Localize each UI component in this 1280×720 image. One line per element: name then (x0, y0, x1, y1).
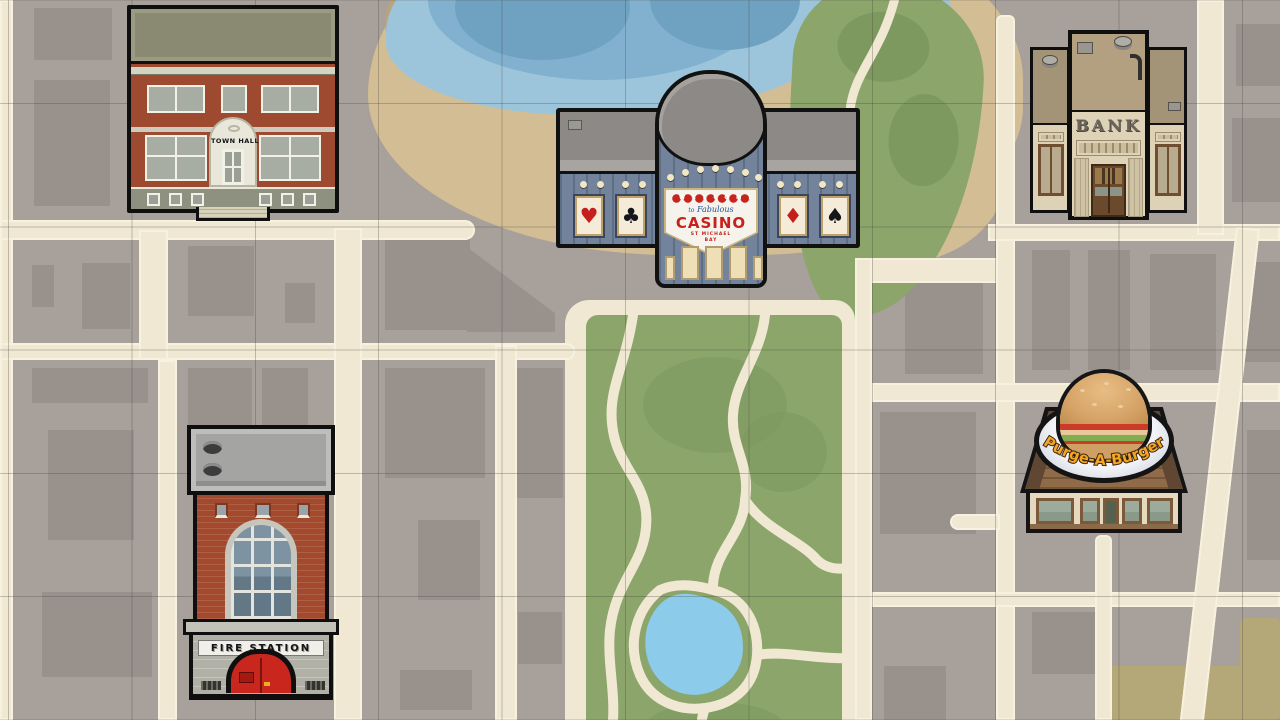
street (158, 360, 177, 720)
street (139, 230, 168, 360)
building-footprint (385, 238, 470, 330)
casino-building[interactable]: ♥ ♣ ♦ ♠ WELCOME to (556, 70, 866, 288)
marquee-light (777, 181, 784, 188)
marquee-light (697, 166, 704, 173)
town-hall-sign: TOWN HALL (211, 137, 255, 145)
street (872, 592, 1280, 607)
roof-vent (203, 463, 222, 476)
window (221, 85, 247, 113)
burger-sign: Purge-A-Burger (1040, 434, 1168, 469)
fire-station-roof (187, 425, 335, 495)
marquee-light (742, 169, 749, 176)
park-pond (645, 594, 743, 695)
marquee-light (794, 181, 801, 188)
entrance-panel (705, 246, 723, 280)
bank-building[interactable]: BANK (1030, 30, 1187, 220)
playing-card-club: ♣ (617, 196, 645, 236)
building-footprint (467, 247, 555, 332)
portico-frieze (1076, 140, 1141, 156)
street-stub (950, 514, 1000, 530)
marquee-light (836, 181, 843, 188)
fire-station-base (189, 694, 333, 700)
column (1128, 158, 1143, 217)
roof-vent-box (1168, 102, 1181, 111)
roof-vent (1114, 36, 1132, 47)
entrance-panel (753, 256, 763, 280)
bank-left-wing (1030, 47, 1070, 213)
burger-sign-text-arc: Purge-A-Burger (1030, 433, 1178, 489)
park-paths (565, 300, 855, 720)
sesame-seed (1126, 388, 1131, 391)
bank-door (1091, 164, 1126, 217)
casino-sign-fabulous: Fabulous (697, 205, 734, 214)
garage-door-panel (239, 672, 254, 683)
casino-tower: WELCOME to Fabulous CASINO ST MICHAEL BA… (655, 70, 767, 288)
street (0, 220, 475, 240)
window (1155, 144, 1181, 196)
storefront-window (1122, 498, 1142, 524)
entrance-portico: TOWN HALL (209, 117, 257, 187)
casino-sign-welcome: WELCOME (671, 193, 751, 204)
entrance-panel (665, 256, 675, 280)
building-footprint (34, 8, 112, 60)
window (1038, 144, 1064, 196)
building-footprint (1232, 118, 1280, 202)
building-footprint (42, 592, 152, 677)
street (996, 15, 1015, 720)
roof-vent-box (1077, 42, 1093, 54)
building-footprint (418, 520, 480, 600)
small-window (297, 503, 310, 518)
door-seam (1108, 168, 1110, 213)
marquee-light (639, 181, 646, 188)
vent-grate (201, 681, 221, 690)
khaki-block (1240, 618, 1280, 720)
basement-window (169, 193, 182, 206)
building-footprint (32, 368, 148, 403)
marquee-light (755, 174, 762, 181)
storefront-window (1036, 498, 1074, 524)
building-footprint (285, 283, 315, 323)
small-window (215, 503, 228, 518)
burger-restaurant-building[interactable]: Purge-A-Burger (1020, 385, 1188, 537)
bun-top (1060, 373, 1148, 424)
bank-right-wing (1147, 47, 1187, 213)
marquee-light (580, 181, 587, 188)
casino-sign-sub2: BAY (666, 238, 756, 243)
basement-window (303, 193, 316, 206)
fire-station-brick (193, 495, 329, 619)
window (259, 135, 321, 181)
marquee-light (712, 165, 719, 172)
building-footprint (188, 246, 254, 316)
marquee-light (597, 181, 604, 188)
entrance-panel (681, 246, 699, 280)
street (0, 343, 575, 360)
window (147, 85, 205, 113)
svg-text:Purge-A-Burger: Purge-A-Burger (1040, 434, 1168, 469)
roof-vent (1042, 55, 1058, 65)
fire-station-lower: FIRE STATION (189, 635, 333, 700)
vent-grate (305, 681, 325, 690)
small-window (255, 503, 271, 518)
building-footprint (1088, 250, 1130, 370)
casino-dome (655, 70, 767, 166)
basement-window (281, 193, 294, 206)
playing-card-spade: ♠ (821, 196, 849, 236)
casino-sign-name: CASINO (666, 214, 756, 232)
building-footprint (262, 368, 308, 426)
town-hall-building[interactable]: TOWN HALL (127, 5, 339, 213)
street (1197, 0, 1224, 235)
sesame-seed (1092, 403, 1097, 406)
window-frieze (1038, 132, 1064, 142)
entrance-panel (729, 246, 747, 280)
playing-card-diamond: ♦ (779, 196, 807, 236)
storefront-door (1103, 498, 1119, 526)
fire-station-cornice (183, 619, 339, 635)
column (1074, 158, 1089, 217)
street (495, 345, 517, 720)
building-footprint (518, 612, 562, 664)
roof-vent-icon (568, 120, 582, 130)
fire-station-building[interactable]: FIRE STATION (183, 425, 339, 700)
sesame-seed (1104, 382, 1109, 385)
building-footprint (1150, 254, 1216, 370)
marquee-light (727, 166, 734, 173)
building-footprint (32, 265, 54, 307)
marquee-light (682, 169, 689, 176)
building-footprint (1247, 430, 1280, 560)
sesame-seed (1118, 405, 1123, 408)
street (855, 258, 1015, 283)
casino-sign-to: to (688, 207, 694, 214)
marquee-light (622, 181, 629, 188)
storefront-base (1030, 524, 1178, 529)
building-footprint (1032, 612, 1104, 674)
town-hall-cornice (131, 67, 335, 75)
building-footprint (385, 368, 485, 478)
entrance-door (222, 149, 244, 185)
city-map: TOWN HALL ♥ ♣ ♦ ♠ (0, 0, 1280, 720)
roof-vent (203, 441, 222, 454)
bank-tower: BANK (1068, 30, 1149, 220)
building-footprint (515, 368, 563, 498)
building-footprint (188, 368, 252, 426)
building-footprint (82, 263, 130, 329)
door-handle (264, 682, 270, 686)
building-footprint (1032, 250, 1070, 370)
street-stub (1095, 535, 1112, 720)
window (145, 135, 207, 181)
roof-pipe (1130, 54, 1142, 80)
casino-sign-sub1: ST MICHAEL (666, 232, 756, 237)
street (855, 258, 872, 720)
basement-window (191, 193, 204, 206)
basement-window (259, 193, 272, 206)
storefront-window (1080, 498, 1100, 524)
sesame-seed (1080, 389, 1085, 392)
building-footprint (1236, 24, 1280, 86)
building-footprint (884, 666, 946, 720)
storefront-window (1147, 498, 1173, 524)
building-footprint (48, 430, 134, 540)
basement-window (147, 193, 160, 206)
burger-storefront (1026, 489, 1182, 533)
building-footprint (400, 670, 472, 710)
entrance-steps (196, 207, 270, 221)
town-hall-roof (131, 9, 335, 64)
street (0, 0, 13, 720)
medallion (228, 125, 240, 132)
window (261, 85, 319, 113)
building-footprint (34, 80, 110, 206)
central-park (565, 300, 855, 720)
arch-window (225, 519, 297, 619)
bank-sign: BANK (1072, 116, 1145, 135)
window-frieze (1155, 132, 1181, 142)
marquee-light (819, 181, 826, 188)
wing-roof (1150, 50, 1184, 125)
garage-door-seam (260, 658, 262, 693)
marquee-light (667, 174, 674, 181)
playing-card-heart: ♥ (575, 196, 603, 236)
